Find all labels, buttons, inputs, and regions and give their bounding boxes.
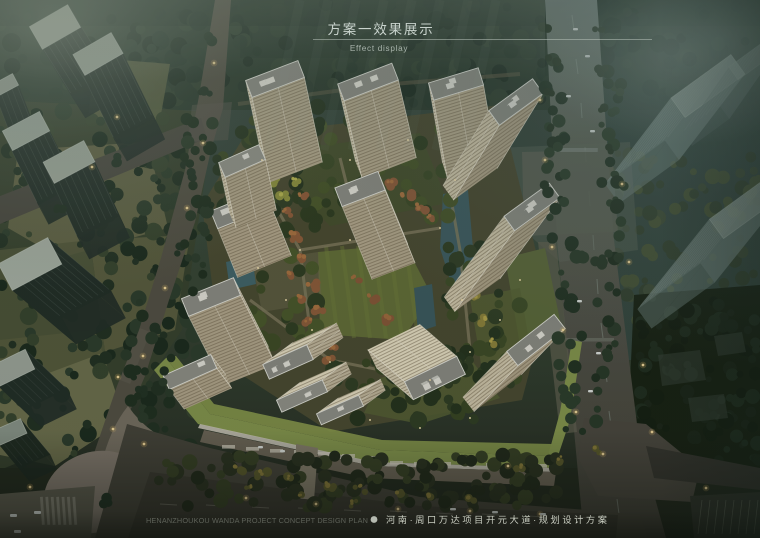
svg-text:方案一效果展示: 方案一效果展示 xyxy=(327,21,434,37)
svg-text:HENANZHOUKOU WANDA PROJECT CON: HENANZHOUKOU WANDA PROJECT CONCEPT DESIG… xyxy=(146,516,368,525)
svg-text:河南·周口万达项目开元大道·规划设计方案: 河南·周口万达项目开元大道·规划设计方案 xyxy=(386,514,610,525)
svg-text:Effect display: Effect display xyxy=(350,44,409,53)
